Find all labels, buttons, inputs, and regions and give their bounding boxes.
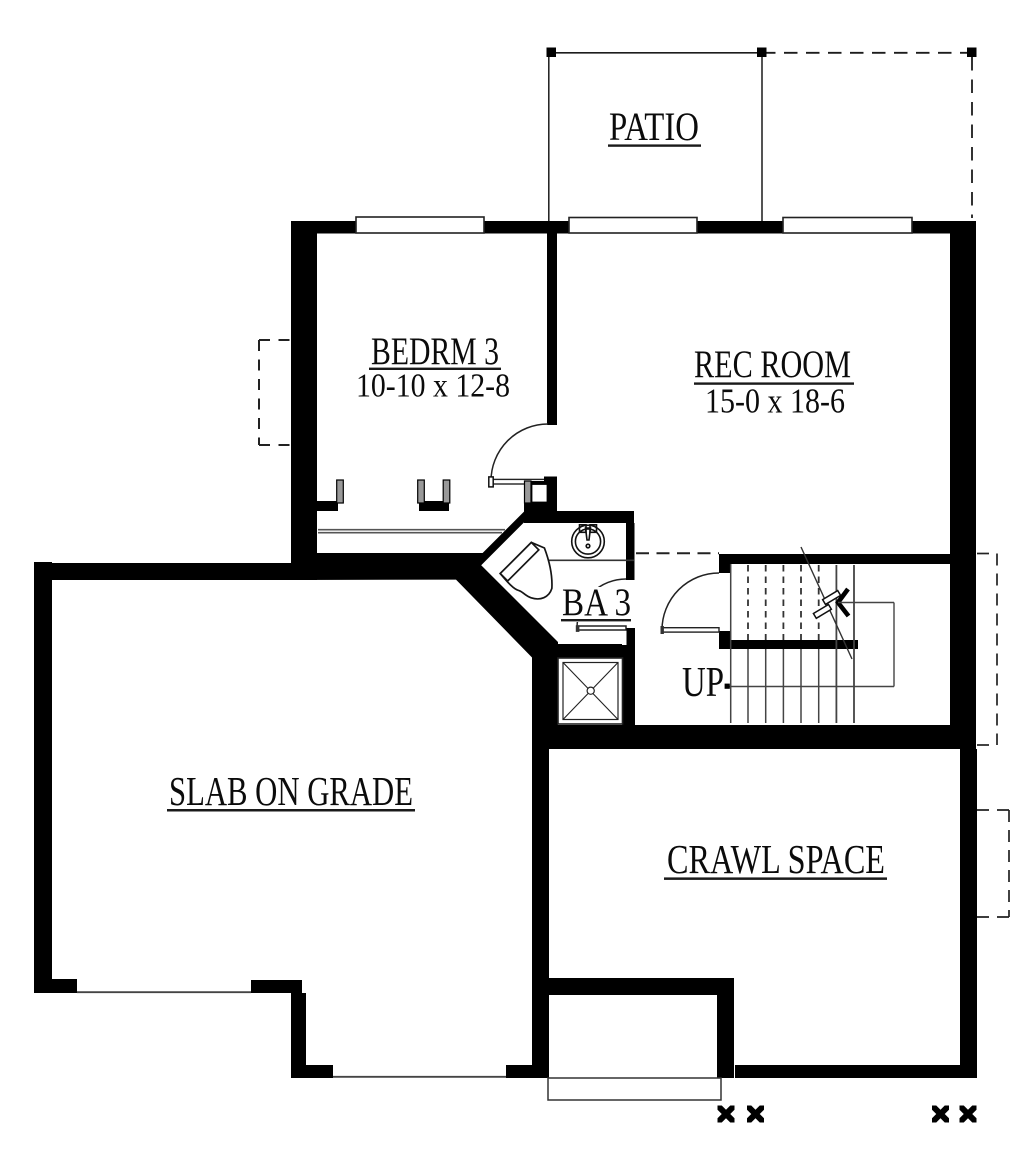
svg-text:UP: UP	[682, 660, 724, 706]
svg-text:BA 3: BA 3	[562, 581, 631, 624]
svg-text:PATIO: PATIO	[609, 104, 699, 149]
svg-text:REC ROOM: REC ROOM	[694, 342, 851, 386]
svg-text:SLAB ON GRADE: SLAB ON GRADE	[169, 768, 413, 814]
svg-text:10-10 x 12-8: 10-10 x 12-8	[356, 368, 510, 405]
svg-text:CRAWL SPACE: CRAWL SPACE	[667, 836, 885, 882]
svg-text:15-0 x 18-6: 15-0 x 18-6	[705, 382, 845, 421]
